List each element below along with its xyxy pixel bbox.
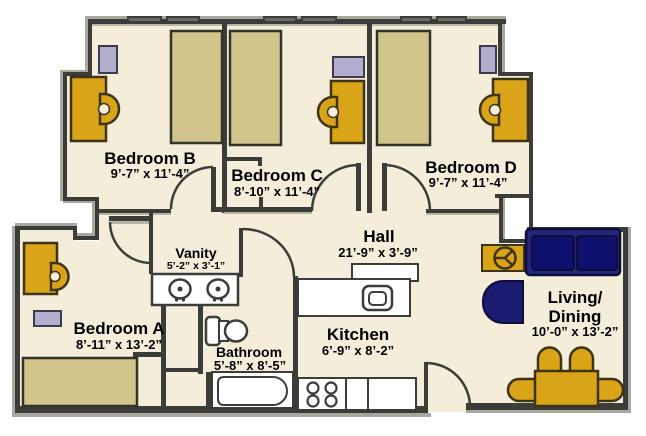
svg-text:9’-7” x 11’-4”: 9’-7” x 11’-4” [429, 175, 508, 190]
svg-text:8’-11” x 13’-2”: 8’-11” x 13’-2” [76, 337, 162, 352]
svg-text:5’-8” x 8’-5”: 5’-8” x 8’-5” [214, 358, 286, 373]
svg-text:21’-9” x 3’-9”: 21’-9” x 3’-9” [338, 245, 418, 260]
svg-text:8’-10” x 11’-4”: 8’-10” x 11’-4” [234, 184, 320, 199]
svg-text:Bedroom A: Bedroom A [74, 319, 165, 338]
svg-text:Bedroom C: Bedroom C [231, 166, 323, 185]
svg-text:5’-2” x 3’-1”: 5’-2” x 3’-1” [167, 260, 225, 272]
svg-text:Hall: Hall [363, 227, 394, 246]
svg-text:10’-0” x 13’-2”: 10’-0” x 13’-2” [532, 324, 619, 339]
svg-text:Kitchen: Kitchen [327, 325, 389, 344]
svg-text:Vanity: Vanity [175, 245, 216, 261]
svg-text:Living/: Living/ [548, 288, 603, 307]
svg-text:9’-7” x 11’-4”: 9’-7” x 11’-4” [111, 166, 190, 181]
svg-text:6’-9” x 8’-2”: 6’-9” x 8’-2” [322, 343, 394, 358]
